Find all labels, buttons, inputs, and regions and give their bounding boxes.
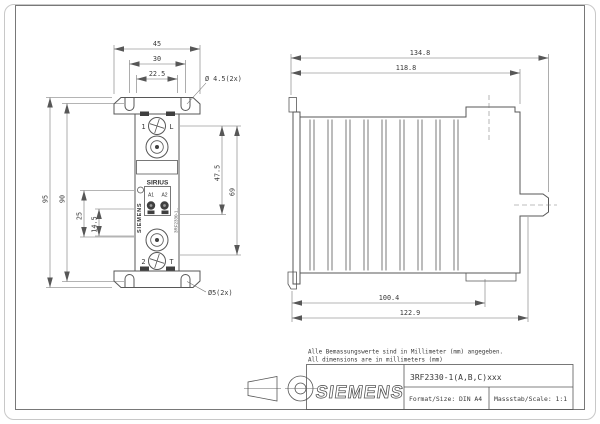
dim-depth-body: 118.8 xyxy=(396,64,416,72)
connector2-dot xyxy=(155,238,159,242)
terminal2-number: 2 xyxy=(141,258,145,266)
title-block: SIEMENS 3RF2330-1(A,B,C)xxx Format/Size:… xyxy=(307,365,574,410)
dim-left-inner2: 14.5 xyxy=(91,216,99,232)
format-field: Format/Size: DIN A4 xyxy=(409,395,482,403)
side-top-profile xyxy=(300,107,520,194)
bottom-slot-left xyxy=(125,275,134,288)
coil-screw-a1-slot xyxy=(150,204,153,207)
mount-tab xyxy=(140,112,149,117)
dim-width-body: 22.5 xyxy=(149,70,165,78)
bottom-slot-right xyxy=(181,275,190,288)
side-bottom-profile xyxy=(300,216,520,273)
top-slot-left xyxy=(125,98,134,111)
part-number: 3RF2330-1(A,B,C)xxx xyxy=(410,373,502,382)
dim-height-outer: 95 xyxy=(42,195,50,203)
notes: Alle Bemassungswerte sind in Millimeter … xyxy=(308,350,503,364)
heatsink-fins xyxy=(310,120,458,271)
dim-width-slots: 30 xyxy=(153,55,161,63)
note-line-de: Alle Bemassungswerte sind in Millimeter … xyxy=(308,350,503,356)
screw-cross-icon xyxy=(148,117,167,136)
mount-tab xyxy=(166,112,175,117)
dim-depth-clip: 122.9 xyxy=(400,309,420,317)
coil-opening xyxy=(148,211,155,215)
terminal2-letter: T xyxy=(169,258,174,266)
dim-width-outer: 45 xyxy=(153,40,161,48)
dim-right-inner: 47.5 xyxy=(214,165,222,181)
screw-cross-icon xyxy=(148,252,167,271)
dim-depth-heatsink: 100.4 xyxy=(379,294,399,302)
back-plate xyxy=(293,112,300,284)
terminal1-letter: L xyxy=(169,123,173,131)
label-plate xyxy=(137,161,178,175)
dim-height-slots: 90 xyxy=(59,195,67,203)
connector1-dot xyxy=(155,145,159,149)
mount-tab xyxy=(166,267,175,272)
bottom-foot xyxy=(466,273,516,281)
coil-a2-label: A2 xyxy=(161,193,167,199)
coil-a1-label: A1 xyxy=(148,193,154,199)
terminal1-number: 1 xyxy=(141,123,145,131)
sirius-label: SIRIUS xyxy=(147,180,169,187)
scale-field: Massstab/Scale: 1:1 xyxy=(494,395,567,403)
note-line-en: All dimensions are in millimeters (mm) xyxy=(308,358,443,364)
dim-bottom-hole: Ø5(2x) xyxy=(208,289,233,297)
top-hook xyxy=(289,98,297,113)
projection-symbol-icon xyxy=(244,376,317,401)
coil-screw-a2-slot xyxy=(163,204,166,207)
top-flange xyxy=(114,98,200,115)
top-slot-right xyxy=(181,98,190,111)
dim-top-hole: Ø 4.5(2x) xyxy=(205,75,242,83)
coil-opening xyxy=(162,211,169,215)
dim-left-inner: 25 xyxy=(76,212,84,220)
dim-right-outer: 69 xyxy=(229,188,237,196)
bottom-flange xyxy=(114,271,200,288)
status-led xyxy=(138,187,144,193)
siemens-logo: SIEMENS xyxy=(314,382,405,402)
siemens-vertical-label: SIEMENS xyxy=(137,203,143,233)
drawing-svg: 1 L SIRIUS A1 A2 SIEMENS 3RF2330 xyxy=(0,0,600,424)
bottom-hook xyxy=(288,272,297,289)
side-view xyxy=(288,95,557,289)
dimension-drawing: 1 L SIRIUS A1 A2 SIEMENS 3RF2330 xyxy=(0,0,600,424)
mount-tab xyxy=(140,267,149,272)
dim-depth-total: 134.8 xyxy=(410,49,430,57)
model-vertical-label: 3RF2330-1.. xyxy=(174,208,179,233)
